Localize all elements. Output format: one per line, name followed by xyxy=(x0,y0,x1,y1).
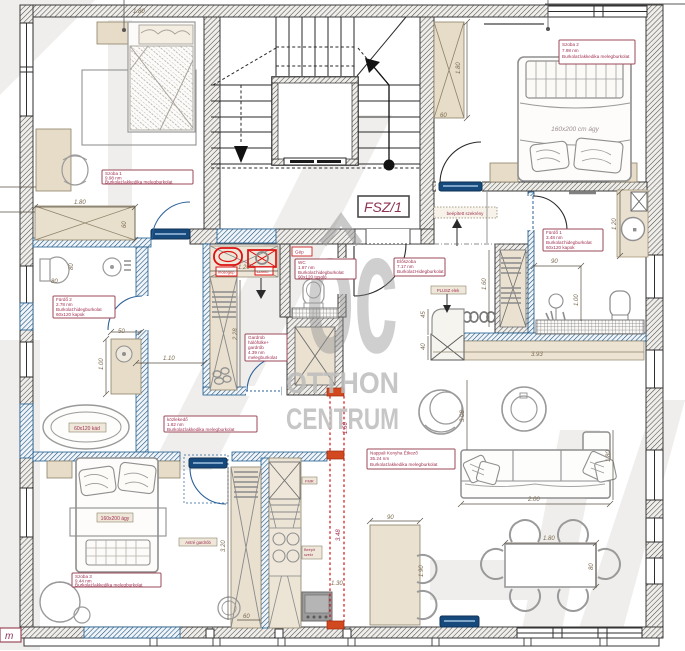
svg-text:1.00: 1.00 xyxy=(99,358,105,370)
svg-text:FSZ/1: FSZ/1 xyxy=(364,199,402,215)
svg-text:50: 50 xyxy=(118,329,125,335)
svg-text:1.66: 1.66 xyxy=(343,422,349,434)
svg-text:Burkolat:lakkedika melegburkol: Burkolat:lakkedika melegburkolat xyxy=(562,54,630,59)
svg-text:Burkolat:lakkedika melegburkol: Burkolat:lakkedika melegburkolat xyxy=(167,427,235,432)
svg-text:35.24 nm: 35.24 nm xyxy=(370,456,389,461)
svg-text:2.00: 2.00 xyxy=(527,497,540,503)
svg-text:160x200 ágy: 160x200 ágy xyxy=(101,516,130,522)
svg-text:1.20: 1.20 xyxy=(238,265,250,271)
svg-text:mosógép: mosógép xyxy=(218,270,235,275)
svg-text:3.08: 3.08 xyxy=(460,410,466,422)
svg-text:1.80: 1.80 xyxy=(133,9,145,15)
svg-text:1.80: 1.80 xyxy=(543,536,555,542)
svg-text:1.00: 1.00 xyxy=(574,294,580,306)
svg-text:Antré gardrób: Antré gardrób xyxy=(185,540,211,545)
svg-text:szárító: szárító xyxy=(257,269,270,274)
svg-text:1.60: 1.60 xyxy=(482,278,488,290)
svg-text:60x120 kapok: 60x120 kapok xyxy=(56,312,85,317)
svg-text:3.48: 3.48 xyxy=(336,529,342,541)
svg-text:40: 40 xyxy=(421,343,427,350)
svg-text:60x120 kapok: 60x120 kapok xyxy=(546,245,575,250)
svg-text:60: 60 xyxy=(243,614,250,620)
svg-text:60x120 kád: 60x120 kád xyxy=(74,426,100,432)
svg-text:45: 45 xyxy=(421,311,427,318)
svg-text:Burkolat:Hidegburkolat: Burkolat:Hidegburkolat xyxy=(397,269,444,274)
svg-text:beépített szekrény: beépített szekrény xyxy=(447,211,485,216)
svg-text:1.90: 1.90 xyxy=(419,565,425,577)
svg-text:3.93: 3.93 xyxy=(531,352,543,358)
svg-text:90x120 tusoló: 90x120 tusoló xyxy=(298,275,327,280)
svg-text:3.20: 3.20 xyxy=(221,540,227,552)
svg-text:Szoba 2: Szoba 2 xyxy=(562,42,579,47)
svg-text:1.80: 1.80 xyxy=(456,62,462,74)
svg-text:90: 90 xyxy=(387,515,394,521)
svg-text:1.20: 1.20 xyxy=(612,218,618,230)
svg-text:m: m xyxy=(5,631,13,642)
svg-text:80: 80 xyxy=(589,563,595,570)
svg-text:2.28: 2.28 xyxy=(233,328,239,341)
svg-text:OTTHON: OTTHON xyxy=(286,367,399,400)
svg-text:Nappali Konyha Étkező: Nappali Konyha Étkező xyxy=(370,450,418,456)
svg-text:melegburkolat: melegburkolat xyxy=(248,355,278,360)
svg-text:Gép: Gép xyxy=(295,250,304,255)
svg-text:80: 80 xyxy=(69,263,75,270)
svg-text:1.10: 1.10 xyxy=(163,356,175,362)
svg-text:FMR: FMR xyxy=(305,479,314,484)
svg-text:Burkolat:lakkedika melegburkol: Burkolat:lakkedika melegburkolat xyxy=(370,462,438,467)
svg-text:PLUSZ elek: PLUSZ elek xyxy=(437,288,460,293)
svg-text:szekr: szekr xyxy=(304,553,314,557)
svg-text:1.30: 1.30 xyxy=(331,581,343,587)
svg-text:Burkolat:lakkedika melegburkol: Burkolat:lakkedika melegburkolat xyxy=(105,180,173,185)
svg-text:7.98 nm: 7.98 nm xyxy=(562,48,579,53)
svg-text:oc: oc xyxy=(306,193,398,389)
svg-text:160x200 cm ágy: 160x200 cm ágy xyxy=(551,126,599,133)
svg-text:60: 60 xyxy=(122,221,128,228)
svg-text:1.80: 1.80 xyxy=(74,200,86,206)
svg-text:1.80: 1.80 xyxy=(606,450,612,462)
svg-text:90: 90 xyxy=(551,259,558,265)
svg-text:60: 60 xyxy=(440,113,447,119)
svg-text:Burkolat:lakkedika melegburkol: Burkolat:lakkedika melegburkolat xyxy=(75,583,143,588)
svg-text:Beépít: Beépít xyxy=(304,548,316,552)
svg-text:80: 80 xyxy=(51,279,58,285)
